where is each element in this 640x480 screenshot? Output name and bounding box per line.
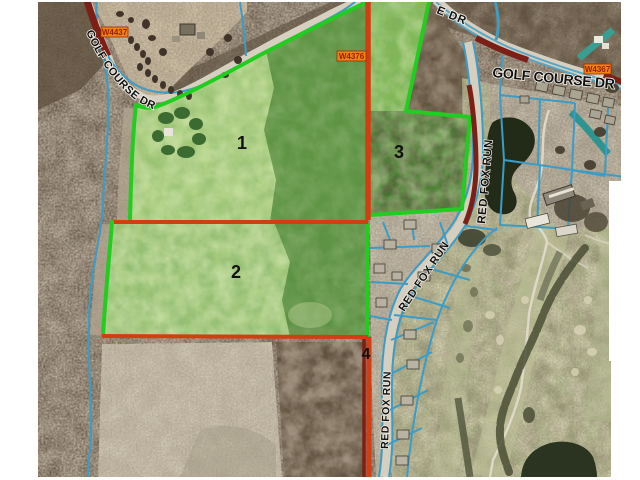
svg-text:W4367: W4367 xyxy=(585,65,611,74)
svg-text:3: 3 xyxy=(394,142,404,162)
svg-text:W4376: W4376 xyxy=(339,52,365,61)
svg-text:W4437: W4437 xyxy=(102,28,128,37)
svg-text:2: 2 xyxy=(231,262,241,282)
svg-text:4: 4 xyxy=(362,346,371,363)
svg-text:1: 1 xyxy=(237,133,247,153)
